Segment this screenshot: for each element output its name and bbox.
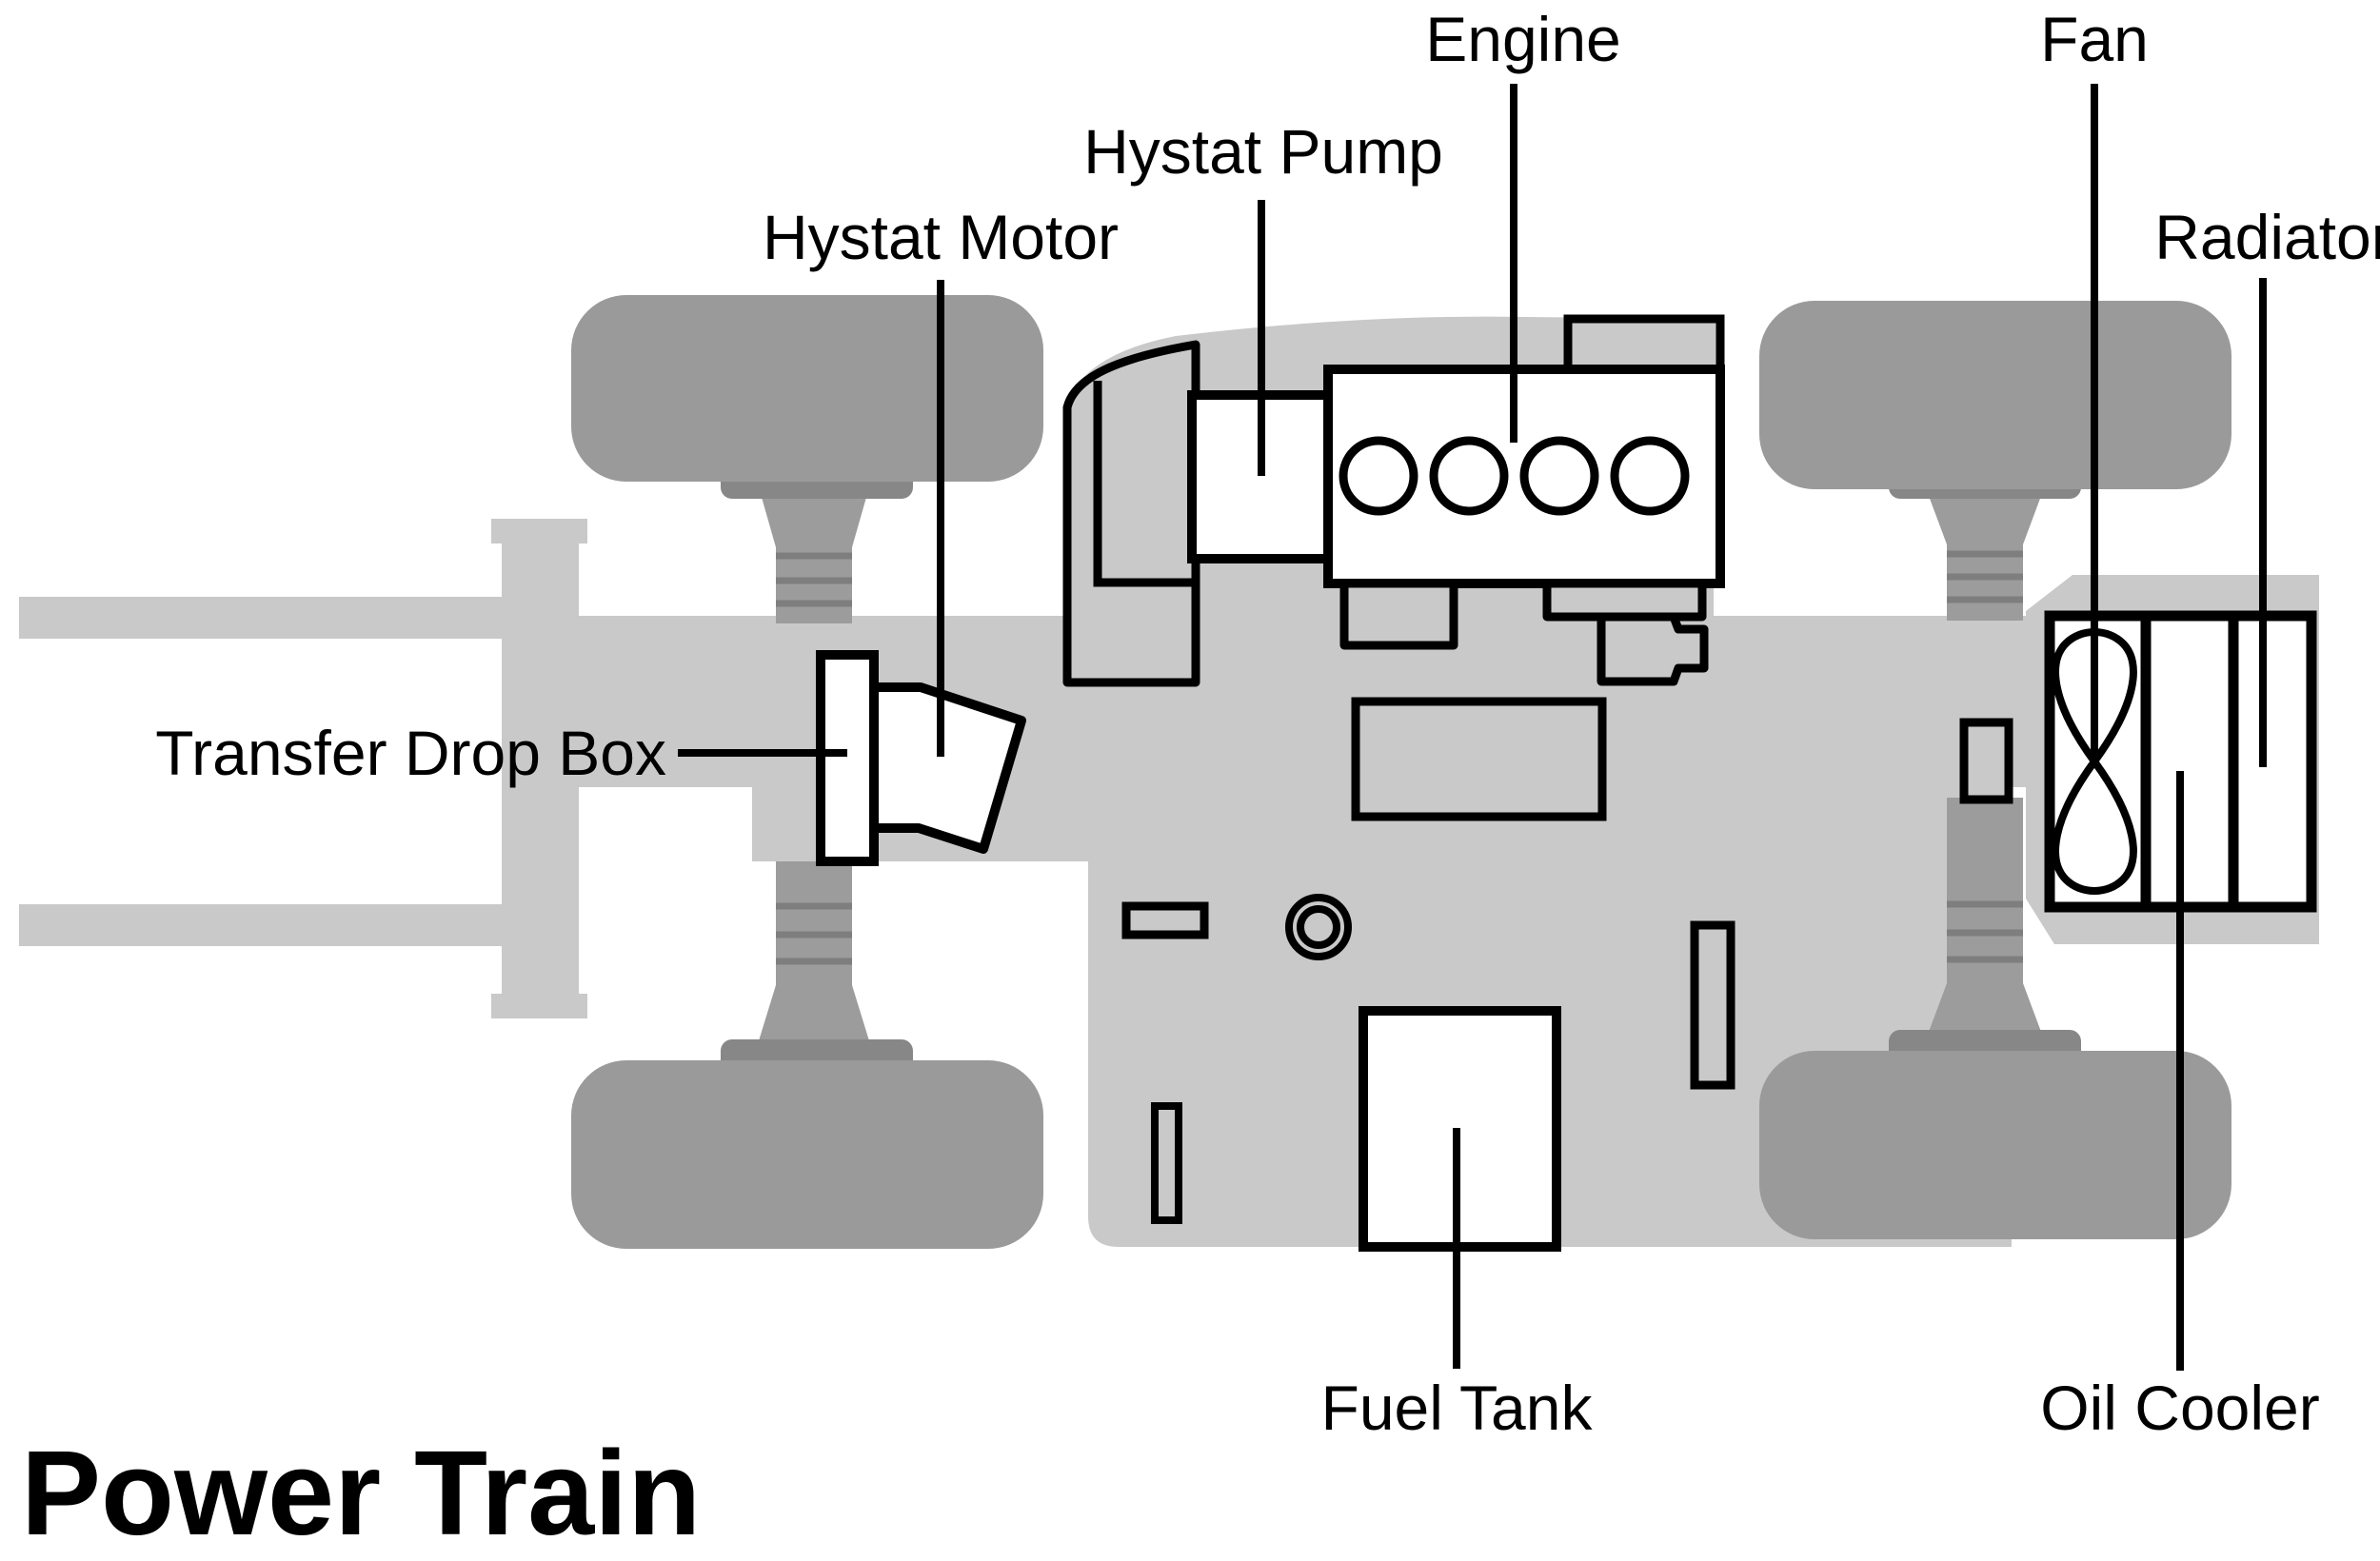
front-right-axle xyxy=(1926,488,2044,621)
hystat-pump-label: Hystat Pump xyxy=(1083,116,1443,187)
floor-plate-small xyxy=(1126,906,1204,935)
power-train-diagram: Engine Fan Hystat Pump Hystat Motor Radi… xyxy=(0,0,2380,1561)
hood-cowl xyxy=(1067,345,1196,682)
engine-mount-right xyxy=(1547,583,1702,617)
rear-left-axle xyxy=(757,861,871,1047)
fork-tine-top xyxy=(19,597,506,639)
rear-right-wheel xyxy=(1759,1051,2231,1239)
engine-block xyxy=(1328,369,1720,583)
radiator-label: Radiator xyxy=(2154,202,2380,272)
hystat-motor-label: Hystat Motor xyxy=(763,202,1119,272)
fan-label: Fan xyxy=(2040,4,2149,74)
transfer-drop-box xyxy=(821,655,874,861)
pedal-bar xyxy=(1155,1106,1179,1220)
engine-coupling xyxy=(1601,617,1704,682)
transfer-drop-box-label: Transfer Drop Box xyxy=(155,718,666,788)
side-bracket xyxy=(1695,925,1731,1085)
rear-coupler xyxy=(1964,722,2009,800)
engine-mount-left xyxy=(1344,583,1454,645)
page-title: Power Train xyxy=(21,1426,701,1560)
front-left-axle xyxy=(757,481,871,623)
diagram-canvas: Engine Fan Hystat Pump Hystat Motor Radi… xyxy=(0,0,2380,1561)
fork-tine-bottom xyxy=(19,904,506,946)
console-box xyxy=(1356,701,1602,817)
rear-left-wheel xyxy=(571,1060,1043,1249)
engine-label: Engine xyxy=(1425,4,1621,74)
oil-cooler-label: Oil Cooler xyxy=(2040,1373,2319,1443)
fuel-tank-label: Fuel Tank xyxy=(1321,1373,1594,1443)
front-left-wheel xyxy=(571,295,1043,482)
front-right-wheel xyxy=(1759,301,2231,489)
